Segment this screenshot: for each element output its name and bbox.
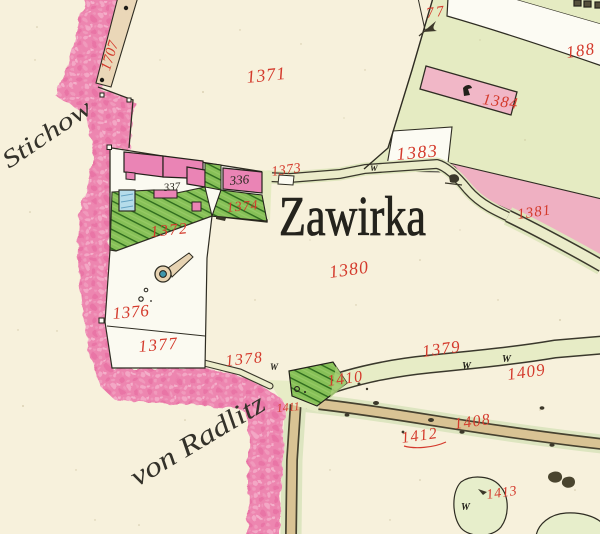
svg-text:1377: 1377	[138, 334, 180, 356]
svg-text:1383: 1383	[396, 140, 440, 164]
svg-text:336: 336	[228, 171, 250, 188]
svg-text:W: W	[502, 354, 512, 365]
svg-text:337: 337	[162, 181, 181, 195]
svg-text:77: 77	[425, 3, 447, 22]
svg-text:1376: 1376	[112, 301, 151, 323]
svg-text:1411: 1411	[276, 399, 300, 415]
svg-text:188: 188	[565, 39, 596, 62]
svg-text:1374: 1374	[226, 198, 259, 216]
svg-text:W: W	[270, 362, 279, 372]
svg-text:W: W	[462, 361, 472, 372]
svg-text:1371: 1371	[245, 63, 287, 87]
svg-text:Zawirka: Zawirka	[279, 186, 426, 248]
svg-text:W: W	[461, 502, 471, 513]
